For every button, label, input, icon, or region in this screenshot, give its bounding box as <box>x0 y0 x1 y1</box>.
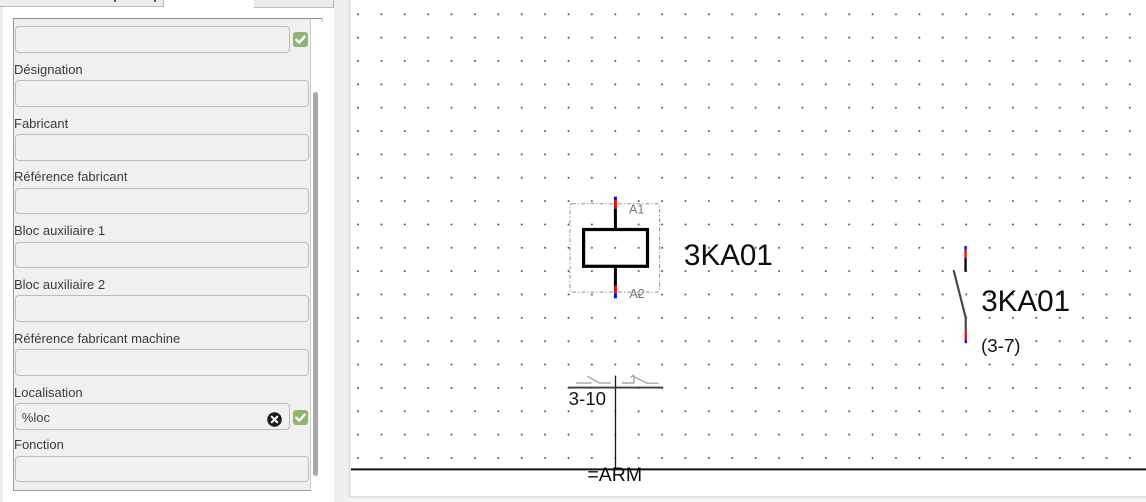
svg-text:=ARM: =ARM <box>587 464 642 486</box>
svg-text:3KA01: 3KA01 <box>981 285 1070 318</box>
svg-text:A2: A2 <box>629 287 644 301</box>
svg-text:(3-7): (3-7) <box>981 335 1020 356</box>
svg-text:3KA01: 3KA01 <box>684 239 773 272</box>
svg-text:A1: A1 <box>629 202 644 216</box>
svg-text:3-10: 3-10 <box>569 388 606 409</box>
